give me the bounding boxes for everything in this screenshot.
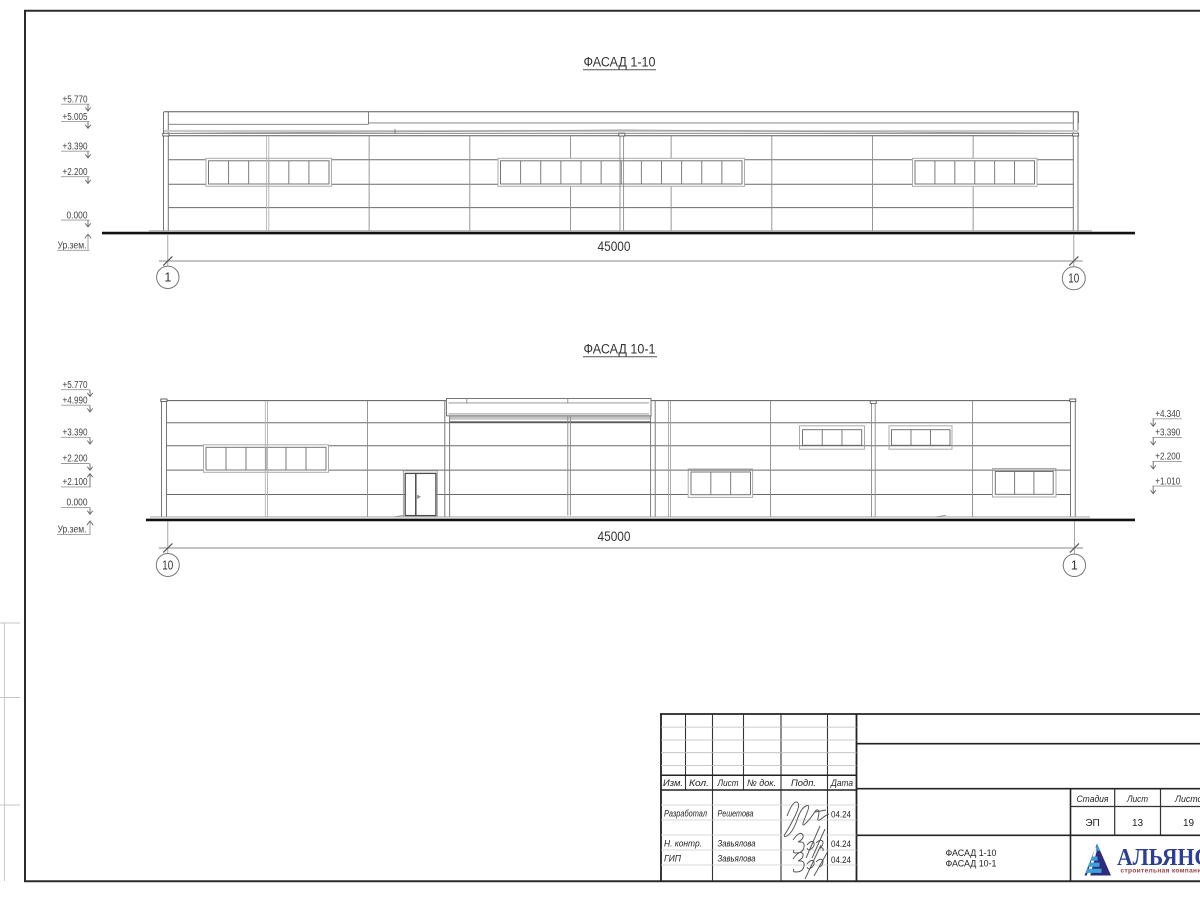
- svg-text:№ док.: № док.: [747, 778, 776, 789]
- svg-text:ФАСАД 10-1: ФАСАД 10-1: [946, 859, 997, 869]
- svg-text:Решетова: Решетова: [718, 809, 754, 820]
- svg-text:ГИП: ГИП: [664, 853, 681, 864]
- svg-text:Разработал: Разработал: [664, 809, 707, 820]
- svg-text:1: 1: [1071, 559, 1078, 573]
- svg-text:Листов: Листов: [1174, 794, 1200, 805]
- svg-text:ФАСАД 1-10: ФАСАД 1-10: [584, 55, 656, 70]
- svg-text:Подп.: Подп.: [791, 778, 816, 789]
- svg-text:Завьялова: Завьялова: [718, 853, 756, 864]
- svg-text:19: 19: [1183, 818, 1195, 829]
- svg-text:Лист: Лист: [717, 778, 739, 789]
- svg-text:ФАСАД 10-1: ФАСАД 10-1: [584, 342, 656, 357]
- svg-text:04.24: 04.24: [831, 839, 851, 850]
- svg-text:ЭП: ЭП: [1085, 818, 1099, 829]
- svg-text:10: 10: [1068, 272, 1079, 286]
- svg-text:Н. контр.: Н. контр.: [664, 838, 702, 849]
- svg-text:45000: 45000: [598, 528, 631, 544]
- svg-text:Изм.: Изм.: [663, 778, 683, 789]
- svg-text:Завьялова: Завьялова: [718, 838, 756, 849]
- svg-text:Дата: Дата: [830, 778, 853, 789]
- svg-text:13: 13: [1132, 818, 1144, 829]
- svg-text:Лист: Лист: [1126, 794, 1148, 805]
- svg-text:45000: 45000: [598, 238, 631, 254]
- svg-text:1: 1: [164, 271, 171, 285]
- svg-text:Стадия: Стадия: [1077, 794, 1109, 805]
- svg-text:10: 10: [162, 558, 173, 572]
- svg-text:Кол.: Кол.: [689, 778, 709, 789]
- svg-text:ФАСАД 1-10: ФАСАД 1-10: [946, 848, 997, 858]
- svg-text:строительная компания: строительная компания: [1121, 868, 1200, 875]
- svg-text:04.24: 04.24: [831, 855, 851, 866]
- svg-text:Ур.зем.: Ур.зем.: [58, 525, 87, 536]
- svg-text:04.24: 04.24: [831, 809, 851, 820]
